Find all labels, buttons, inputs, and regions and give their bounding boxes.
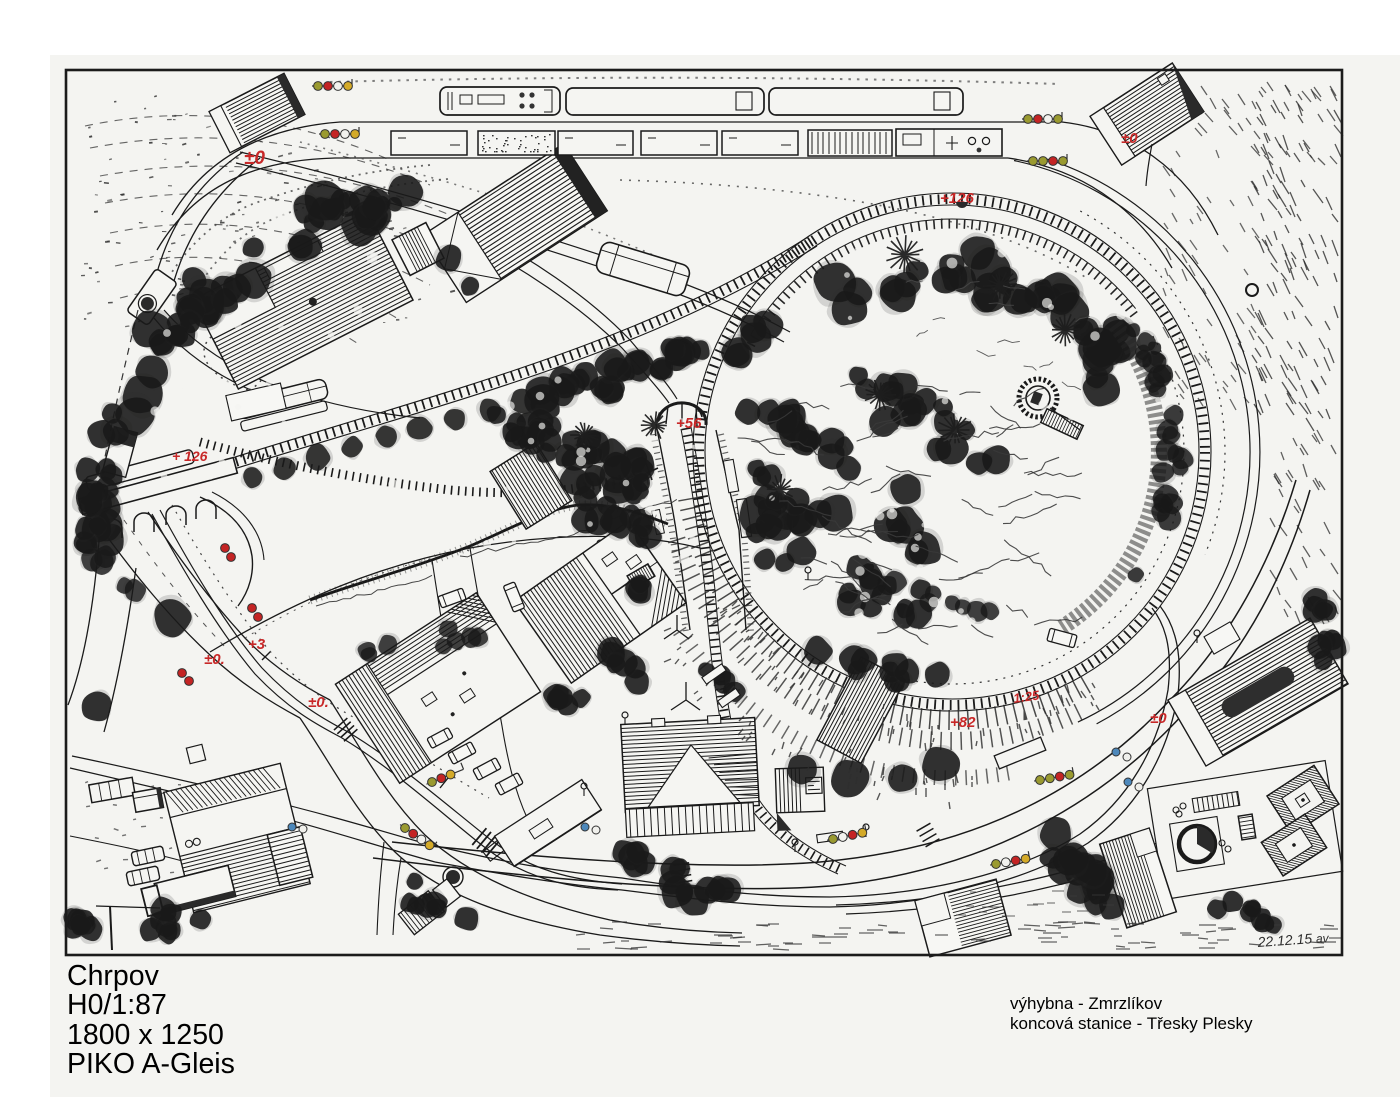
svg-text:+56: +56 [676, 415, 702, 432]
svg-text:+82: +82 [950, 714, 976, 731]
svg-text:+ 126: + 126 [172, 448, 208, 464]
svg-text:+3: +3 [248, 636, 266, 653]
svg-text:±0.: ±0. [204, 651, 225, 668]
svg-text:±0: ±0 [1150, 710, 1167, 727]
svg-text:±0: ±0 [244, 148, 265, 169]
svg-text:±0.: ±0. [308, 694, 329, 711]
svg-text:±0: ±0 [1121, 130, 1138, 147]
